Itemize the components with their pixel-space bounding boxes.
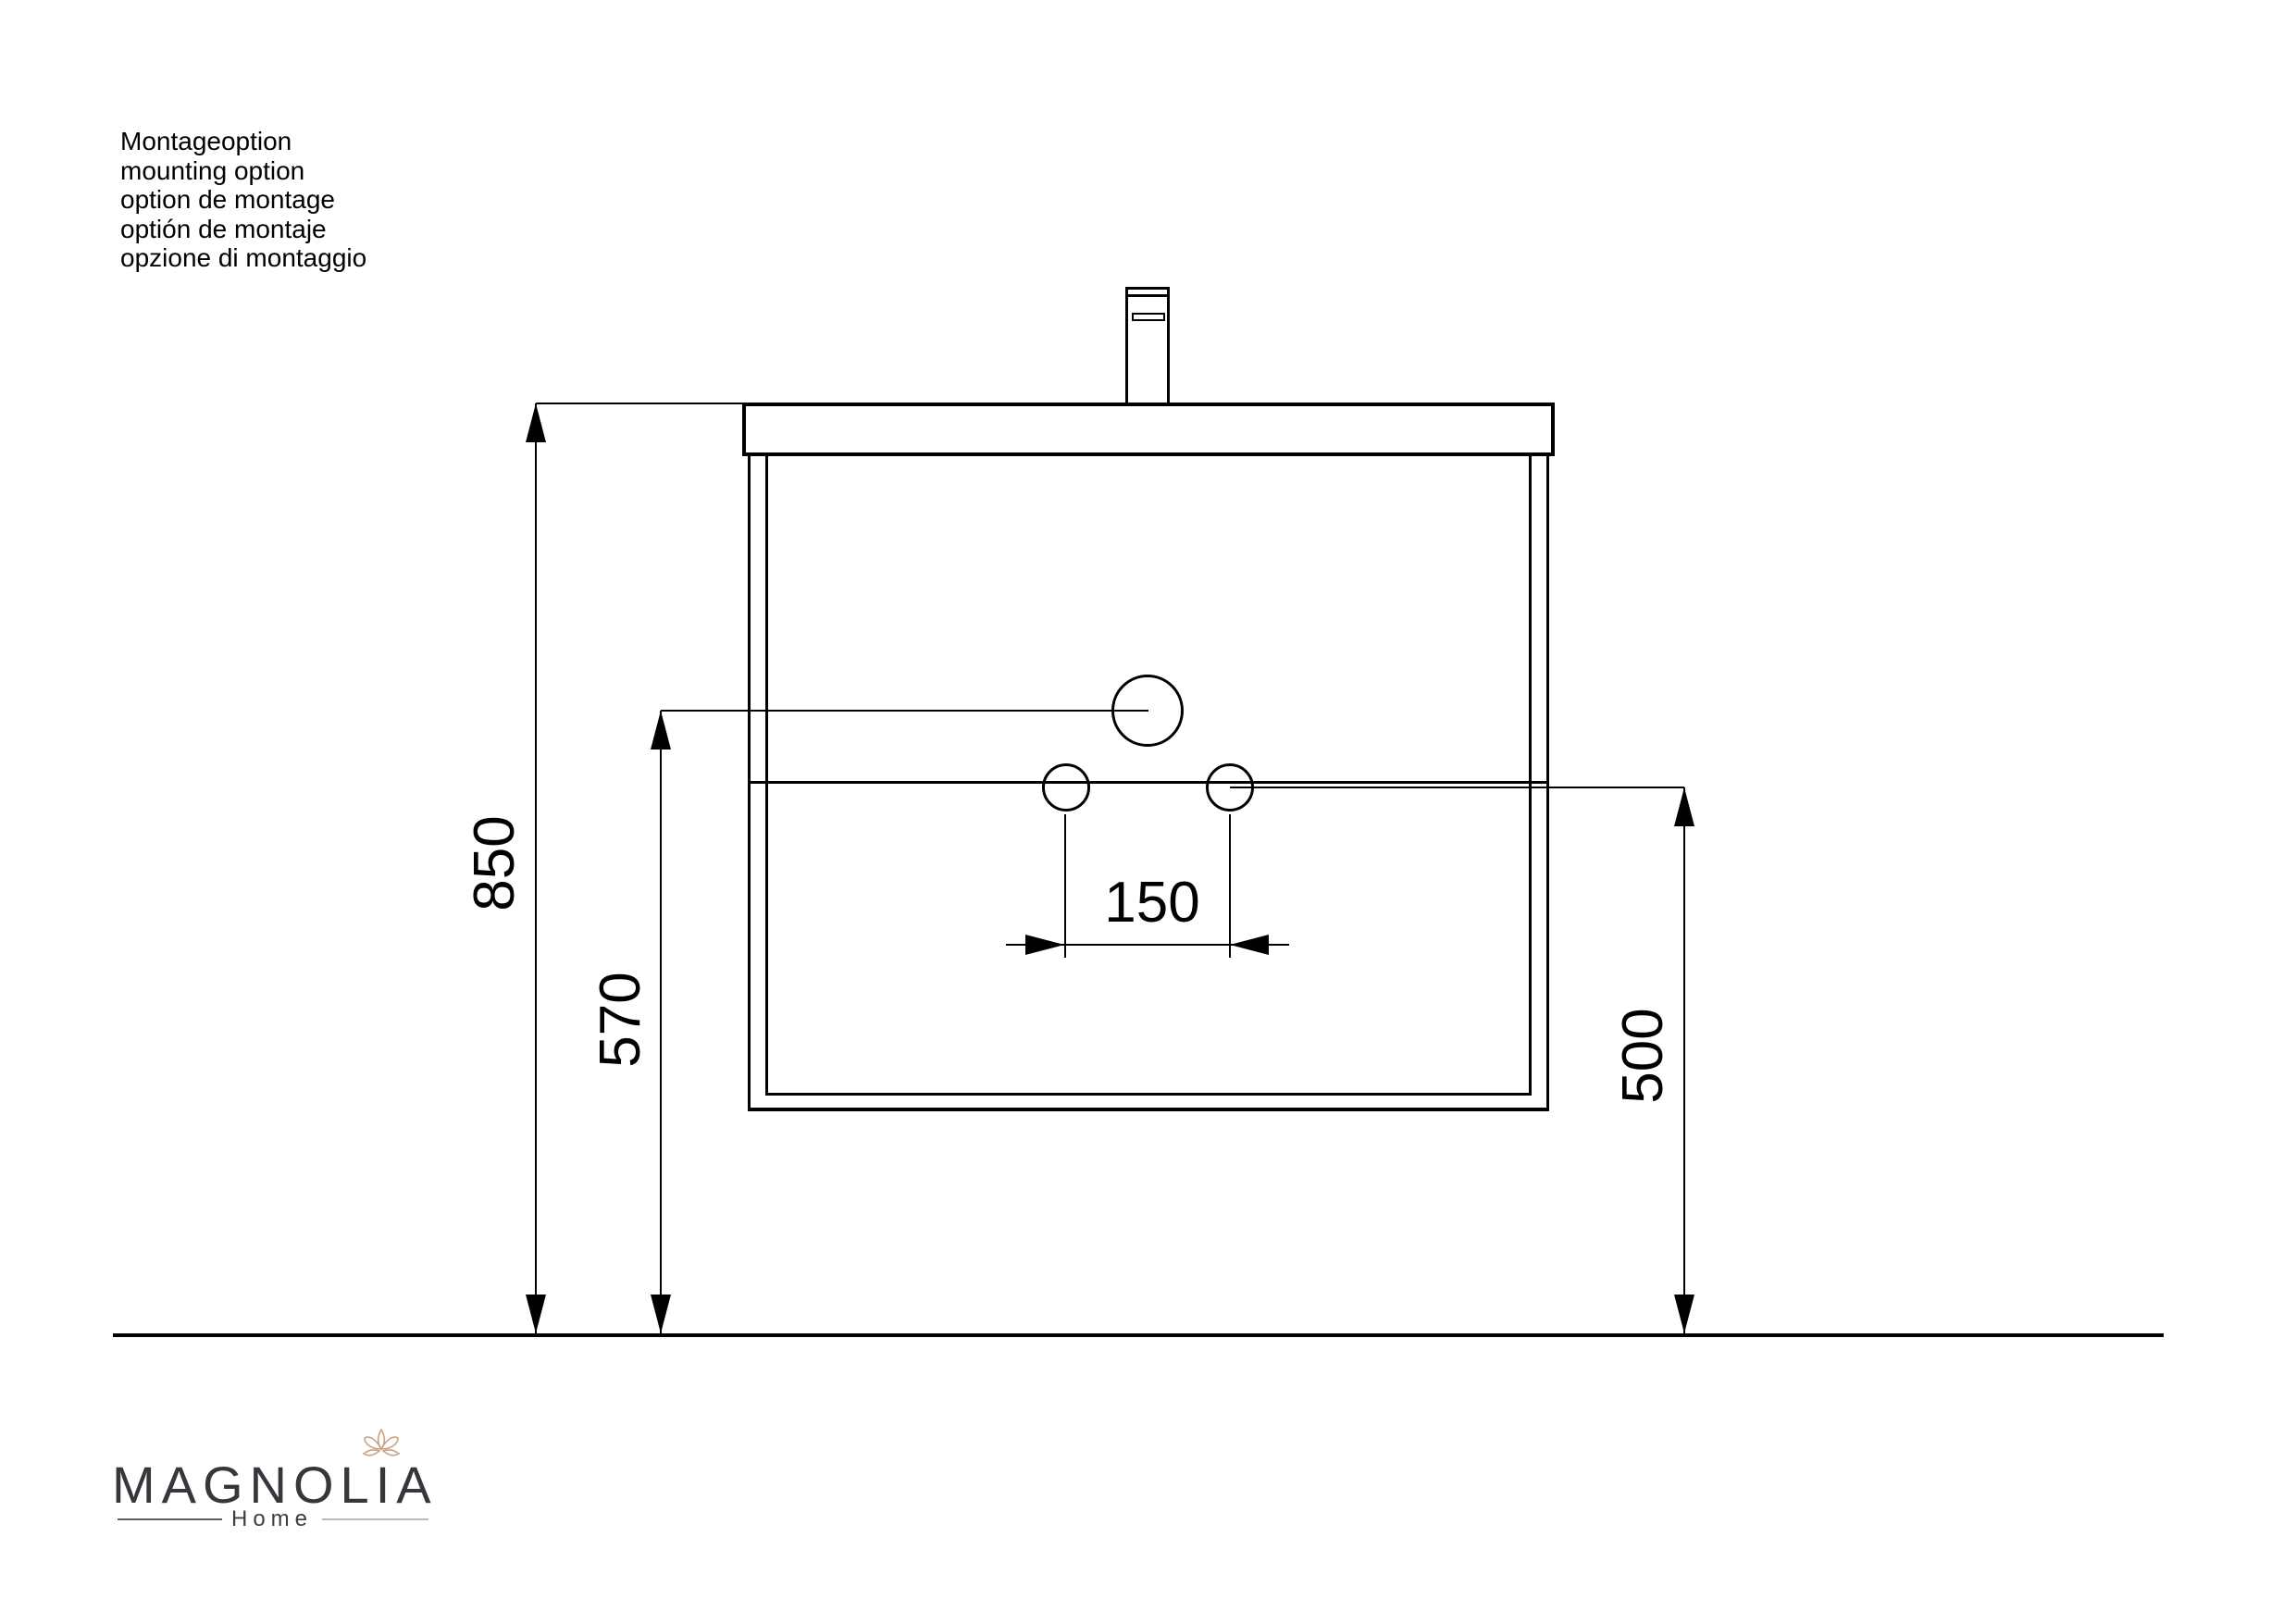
dim-150-arrow-right-icon [1025,935,1064,955]
cabinet-bottom-outer [748,1108,1549,1111]
cabinet-right-wall-inner [1529,455,1532,1095]
dim-500-line [1683,787,1685,1333]
logo-rule-right [322,1518,428,1520]
dim-570-leader-line [661,710,1148,712]
dim-850-label: 850 [466,815,524,911]
dim-500-leader-line [1230,787,1684,788]
dim-150-extension-left [1064,814,1066,958]
ground-line [113,1333,2164,1337]
cabinet-bottom-inner [765,1093,1532,1096]
note-line-en: mounting option [120,156,366,186]
dim-500-arrow-up-icon [1674,787,1694,826]
dim-850-extension-line [536,403,742,404]
dim-570-label: 570 [592,972,650,1067]
drawer-divider-line [749,781,1548,784]
dim-570-line [660,711,662,1333]
dim-150-label: 150 [1104,874,1199,932]
note-line-de: Montageoption [120,127,366,156]
dim-570-arrow-up-icon [651,711,671,750]
faucet-outline [1125,287,1170,403]
faucet-spout [1132,313,1165,321]
dim-500-label: 500 [1615,1008,1672,1103]
dim-850-arrow-down-icon [526,1295,546,1333]
note-line-es: optión de montaje [120,215,366,244]
dim-850-line [535,403,537,1333]
logo-rule-left [118,1518,222,1520]
note-line-fr: option de montage [120,185,366,215]
note-line-it: opzione di montaggio [120,243,366,273]
faucet-cap-line [1125,294,1170,297]
mounting-hole-left-circle [1042,763,1090,811]
mounting-notes: Montageoption mounting option option de … [120,127,366,273]
logo-subtitle-text: Home [231,1506,313,1532]
dim-850-arrow-up-icon [526,403,546,442]
dim-570-arrow-down-icon [651,1295,671,1333]
cabinet-left-wall-inner [765,455,768,1095]
mounting-diagram-page: Montageoption mounting option option de … [0,0,2296,1623]
washbasin-countertop [742,403,1555,456]
dim-150-arrow-left-icon [1230,935,1269,955]
dim-500-arrow-down-icon [1674,1295,1694,1333]
